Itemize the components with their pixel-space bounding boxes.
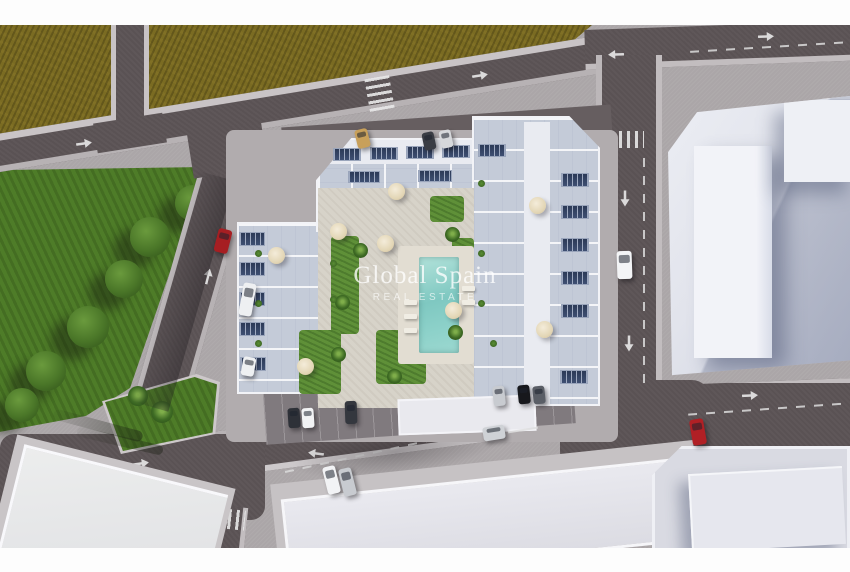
plant — [490, 340, 497, 347]
park-tree — [130, 217, 170, 257]
roof-volume — [694, 146, 772, 358]
east-row-spine — [524, 122, 550, 404]
solar-panel — [349, 172, 379, 182]
parked-car — [287, 408, 300, 429]
neighbor-building-bottom-right — [652, 446, 850, 558]
roof-volume — [688, 466, 846, 552]
courtyard-palm-icon — [331, 347, 346, 362]
solar-panel — [562, 239, 588, 251]
plant — [478, 180, 485, 187]
parasol — [297, 358, 314, 375]
park-tree — [26, 351, 66, 391]
courtyard-palm-icon — [448, 325, 463, 340]
roof-volume — [784, 100, 850, 182]
parked-car — [301, 408, 314, 429]
plant — [255, 340, 262, 347]
sun-lounger — [404, 300, 417, 305]
sun-lounger — [462, 286, 475, 291]
plant — [330, 296, 337, 303]
solar-panel — [240, 233, 264, 245]
plant — [478, 250, 485, 257]
plant — [478, 300, 485, 307]
parasol — [388, 183, 405, 200]
sun-lounger — [404, 314, 417, 319]
solar-panel — [562, 272, 588, 284]
parasol — [529, 197, 546, 214]
aerial-render: Global Spain REAL ESTATE — [0, 0, 850, 572]
courtyard-palm-icon — [353, 243, 368, 258]
courtyard-palm-icon — [387, 369, 402, 384]
parked-car — [517, 384, 531, 404]
plant — [255, 300, 262, 307]
solar-panel — [562, 206, 588, 218]
solar-panel — [419, 171, 451, 181]
plant — [330, 260, 337, 267]
background-band-bottom — [0, 548, 850, 572]
courtyard-palm-icon — [445, 227, 460, 242]
sun-lounger — [404, 328, 417, 333]
parked-car — [532, 385, 546, 404]
courtyard-lawn — [430, 196, 464, 222]
parasol — [268, 247, 285, 264]
complex-east-row — [472, 116, 600, 406]
parked-car — [345, 401, 358, 424]
plant — [255, 250, 262, 257]
solar-panel — [479, 145, 505, 156]
sun-lounger — [462, 300, 475, 305]
parasol — [536, 321, 553, 338]
neighbor-building-right — [658, 96, 850, 378]
parasol — [445, 302, 462, 319]
background-band-top — [0, 0, 850, 25]
solar-panel — [240, 323, 264, 335]
solar-panel — [240, 263, 264, 275]
parked-car — [492, 385, 506, 406]
park-tree — [5, 388, 39, 422]
parasol — [377, 235, 394, 252]
lane-dash — [643, 158, 645, 383]
parasol — [330, 223, 347, 240]
park-tree — [67, 306, 109, 348]
courtyard-palm-icon — [335, 295, 350, 310]
solar-panel — [561, 371, 587, 383]
solar-panel — [562, 305, 588, 317]
solar-panel — [334, 149, 360, 160]
solar-panel — [562, 174, 588, 186]
solar-panel — [371, 148, 397, 159]
moving-car-white — [617, 251, 633, 280]
park-tree — [105, 260, 143, 298]
